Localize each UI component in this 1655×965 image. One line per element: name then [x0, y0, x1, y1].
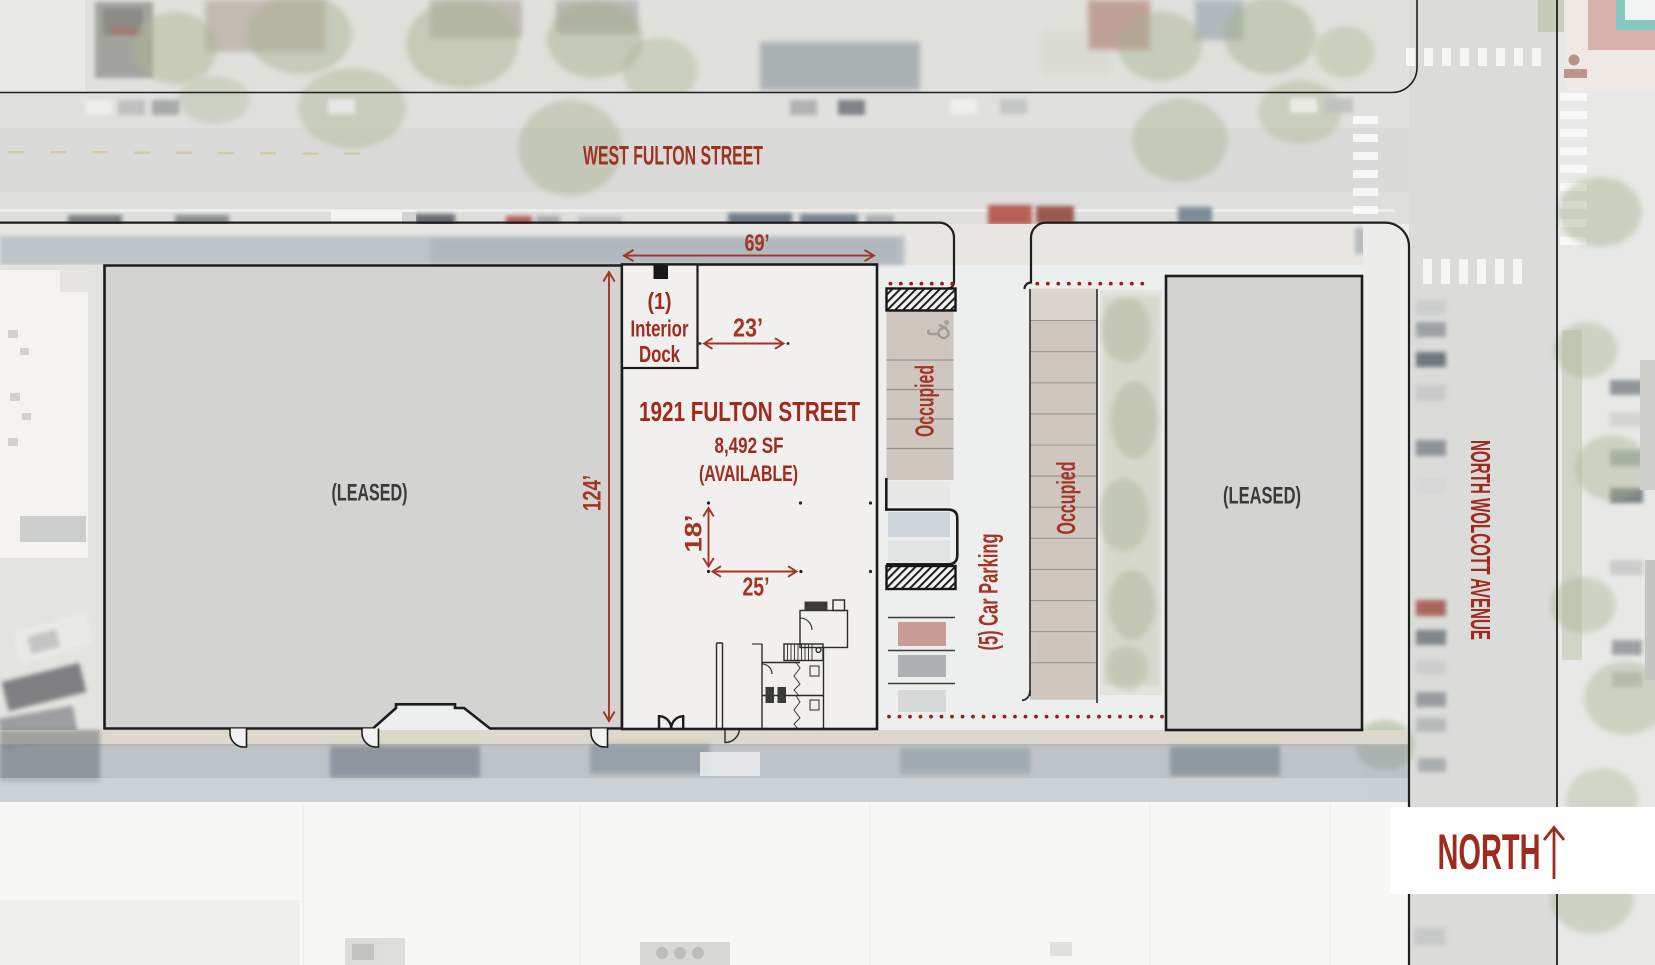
- svg-text:NORTH WOLCOTT AVENUE: NORTH WOLCOTT AVENUE: [1465, 440, 1496, 640]
- svg-text:23’: 23’: [733, 313, 763, 343]
- svg-text:1921 FULTON STREET: 1921 FULTON STREET: [639, 396, 860, 427]
- svg-text:25’: 25’: [743, 572, 770, 602]
- svg-text:(LEASED): (LEASED): [332, 480, 408, 507]
- svg-text:NORTH: NORTH: [1438, 824, 1541, 880]
- svg-text:124’: 124’: [579, 475, 607, 511]
- svg-text:Occupied: Occupied: [1051, 462, 1081, 535]
- svg-text:8,492 SF: 8,492 SF: [715, 433, 784, 458]
- svg-text:WEST FULTON STREET: WEST FULTON STREET: [583, 141, 763, 171]
- svg-text:Occupied: Occupied: [910, 365, 940, 437]
- svg-text:(5) Car Parking: (5) Car Parking: [974, 534, 1004, 651]
- svg-text:(1): (1): [648, 288, 672, 314]
- svg-text:(AVAILABLE): (AVAILABLE): [699, 461, 798, 486]
- svg-text:Dock: Dock: [639, 341, 680, 367]
- svg-text:(LEASED): (LEASED): [1223, 483, 1301, 510]
- svg-text:69’: 69’: [745, 230, 770, 257]
- svg-text:Interior: Interior: [631, 316, 689, 342]
- svg-text:18’: 18’: [681, 515, 708, 553]
